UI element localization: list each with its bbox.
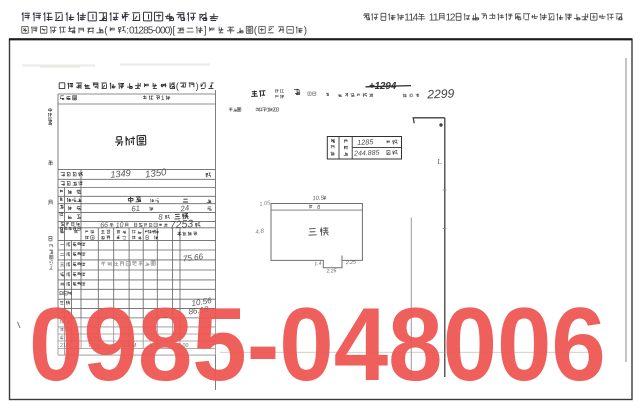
svg-text:1350: 1350	[144, 167, 167, 181]
svg-text:10.5: 10.5	[312, 195, 325, 202]
svg-text:7253: 7253	[169, 218, 193, 232]
svg-text:24: 24	[179, 203, 191, 214]
svg-text:4.8: 4.8	[255, 228, 265, 236]
svg-text:1.4: 1.4	[314, 261, 322, 268]
svg-text:1.05: 1.05	[259, 200, 272, 208]
svg-text:244.885: 244.885	[353, 150, 380, 158]
svg-text:1141112: 1141112	[404, 13, 456, 24]
svg-text:1: 1	[161, 95, 165, 102]
svg-text:75.66: 75.66	[182, 252, 204, 263]
svg-text:1200: 1200	[267, 108, 280, 114]
svg-text:2.25: 2.25	[325, 268, 336, 275]
svg-text:2299: 2299	[426, 87, 455, 102]
svg-text:10: 10	[116, 222, 124, 230]
svg-text:8: 8	[158, 212, 164, 221]
svg-text:66: 66	[100, 222, 108, 230]
svg-text:2.25: 2.25	[345, 260, 356, 267]
svg-text:(): ()	[176, 81, 199, 91]
svg-text:(:01285-000)[](): (:01285-000)[]()	[104, 26, 307, 37]
svg-text:1285: 1285	[357, 137, 375, 147]
svg-text:1349: 1349	[110, 168, 131, 180]
svg-text:61: 61	[131, 204, 141, 214]
svg-text:L: L	[438, 158, 442, 166]
